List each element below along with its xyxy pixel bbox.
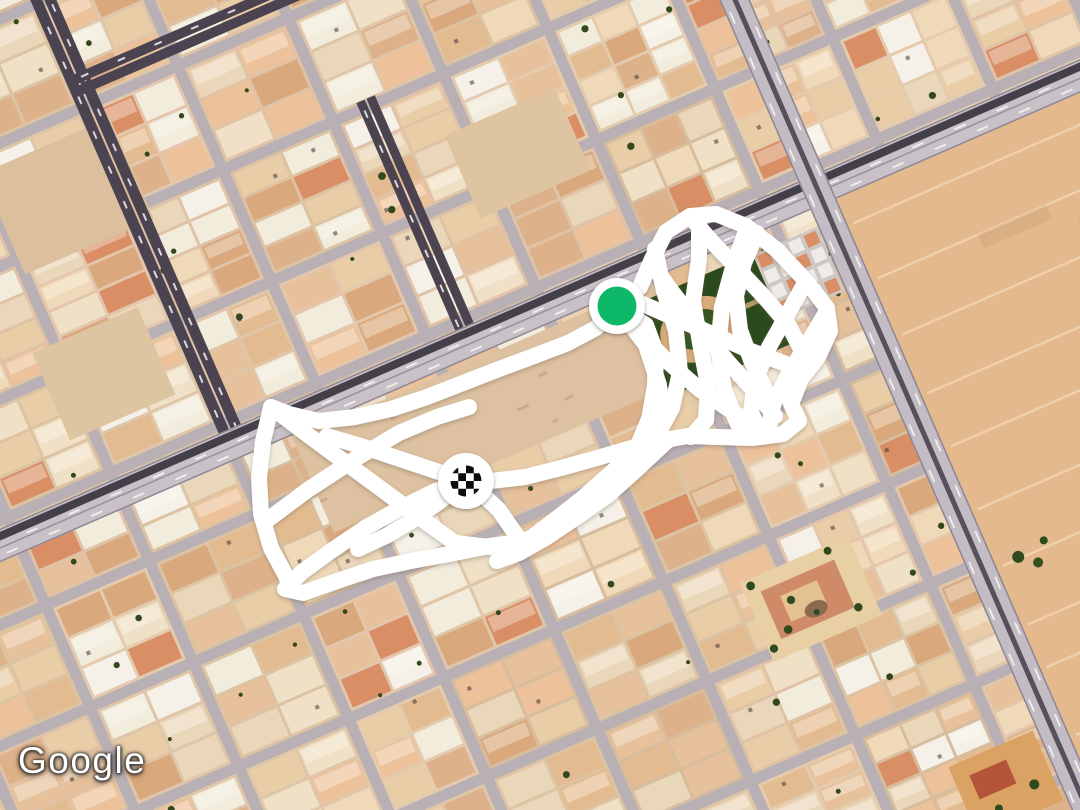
finish-marker[interactable]	[438, 453, 494, 509]
start-marker-dot	[598, 287, 637, 326]
start-marker[interactable]	[589, 278, 645, 334]
google-logo[interactable]: Google	[18, 740, 146, 782]
satellite-map	[0, 0, 1080, 810]
map-viewport[interactable]: Google	[0, 0, 1080, 810]
finish-flag-icon	[451, 466, 482, 497]
city-satellite-imagery	[0, 0, 1080, 810]
